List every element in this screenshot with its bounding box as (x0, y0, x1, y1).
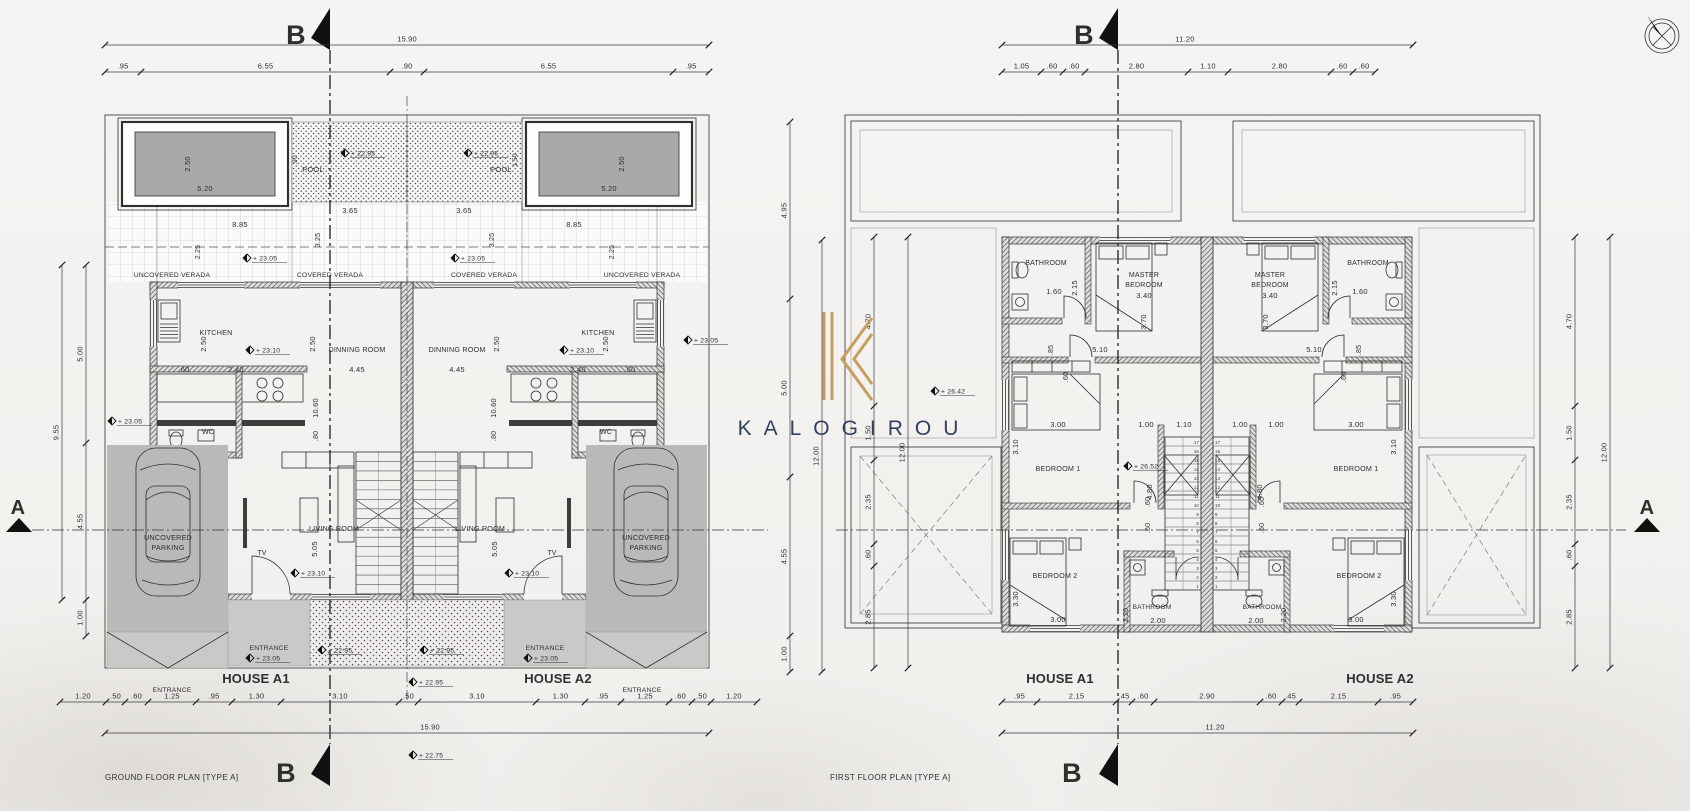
dim-label: 5.00 (76, 346, 85, 361)
stair-step-number: 3 (1215, 566, 1218, 571)
house-label: HOUSE A2 (524, 671, 592, 686)
dim-label: .60 (179, 367, 189, 374)
dim-label: .95 (597, 692, 608, 701)
level-marker-icon (409, 678, 413, 686)
dim-label: 5.20 (197, 184, 212, 193)
stair-step-number: 17 (1215, 440, 1221, 445)
dim-label: 1.00 (76, 610, 85, 625)
dim-label: 4.45 (349, 365, 364, 374)
room-label: UNCOVERED VERADA (604, 272, 681, 279)
dim-label: 6.55 (541, 62, 556, 71)
stair-step-number: 1 (1215, 584, 1218, 589)
dim-label: .60 (1565, 549, 1574, 560)
section-letter: A (1640, 497, 1655, 519)
dim-label: 3.10 (469, 692, 484, 701)
level-marker-icon (409, 751, 413, 759)
dim-label: .60 (625, 367, 635, 374)
room-label: BEDROOM 2 (1033, 571, 1078, 580)
dim-label: 2.35 (1565, 494, 1574, 509)
room-label: KITCHEN (582, 328, 615, 337)
dim-label: 1.20 (75, 692, 90, 701)
dim-label: 11.20 (1205, 723, 1224, 732)
dim-label: 1.00 (1232, 420, 1247, 429)
section-b-flag-bottom (311, 744, 330, 786)
dim-label: 1.30 (553, 692, 568, 701)
room-label: ENTRANCE (250, 645, 289, 652)
dim-label: 3.70 (1139, 314, 1148, 329)
dim-label: 1.05 (1014, 62, 1029, 71)
dim-label: 4.45 (449, 365, 464, 374)
dim-label: 2.25 (195, 245, 202, 259)
dim-label: .95 (1014, 692, 1025, 701)
level-label: + 22.75 (419, 753, 443, 760)
room-label: BATHROOM (1347, 260, 1389, 267)
room-label: PARKING (151, 543, 184, 552)
room-label: ENTRANCE (153, 687, 192, 694)
dim-label: 4.70 (864, 314, 873, 329)
stair-step-number: 1 (1196, 584, 1199, 589)
house-a1-geometry (107, 118, 407, 668)
dim-label: 5.10 (1092, 345, 1107, 354)
room-label: LIVING ROOM (455, 524, 505, 533)
dim-label: 10.60 (489, 398, 498, 418)
stair-step-number: 12 (1215, 485, 1221, 490)
stair-step-number: 11 (1194, 494, 1199, 499)
section-b-flag-top (1099, 8, 1118, 50)
dim-label: 4.55 (780, 549, 789, 564)
dim-label: 3.25 (315, 233, 322, 247)
plot-boundary (845, 115, 1540, 628)
room-label: WC (202, 427, 214, 436)
dim-label: .45 (1285, 692, 1296, 701)
dim-label: .60 (1265, 692, 1276, 701)
level-marker-icon (684, 336, 688, 344)
section-a-arrow (1634, 518, 1660, 532)
dim-label: .50 (110, 692, 121, 701)
dim-label: 2.15 (1330, 280, 1339, 295)
dim-label: 3.40 (1136, 291, 1151, 300)
floor-plans-drawing: 15.90.956.55.906.55.951.20.50.601.25.951… (0, 0, 1690, 811)
stair-step-number: 10 (1215, 503, 1221, 508)
level-label: + 22.95 (419, 680, 443, 687)
dim-label: .60 (864, 549, 873, 560)
room-label: KITCHEN (200, 328, 233, 337)
dim-label: 2.25 (609, 245, 616, 259)
level-marker-icon (931, 387, 935, 395)
stair-step-number: 12 (1194, 485, 1200, 490)
dim-label: 3.00 (1050, 615, 1065, 624)
stair-step-number: 13 (1215, 476, 1221, 481)
room-label: UNCOVERED VERADA (134, 272, 211, 279)
dim-label: 1.50 (512, 153, 519, 167)
dim-label: 2.50 (601, 336, 610, 351)
section-letter: B (286, 20, 306, 50)
dim-label: .60 (131, 692, 142, 701)
level-label: + 23.05 (534, 656, 558, 663)
dim-label: .95 (1390, 692, 1401, 701)
stair-step-number: 11 (1215, 494, 1220, 499)
dim-label: 2.20 (1281, 608, 1288, 622)
dim-label: .60 (1137, 692, 1148, 701)
dim-label: 12.00 (812, 446, 821, 466)
level-label: + 26.52 (1134, 464, 1158, 471)
dim-label: 2.50 (308, 336, 317, 351)
dim-label: 1.50 (864, 425, 873, 440)
dim-label: .60 (1341, 372, 1348, 382)
level-label: + 23.10 (570, 348, 594, 355)
dim-label: 4.55 (76, 514, 85, 529)
dim-label: .60 (1145, 523, 1152, 533)
room-label: BEDROOM 1 (1036, 464, 1081, 473)
stair-step-number: 2 (1196, 575, 1199, 580)
room-label: MASTER (1255, 272, 1285, 279)
stair-step-number: 16 (1215, 449, 1221, 454)
dim-label: POOL (490, 165, 512, 174)
dim-label: .60 (1358, 62, 1369, 71)
dim-label: 2.90 (1199, 692, 1214, 701)
dim-label: 11.20 (1175, 35, 1194, 44)
dim-label: 8.85 (232, 220, 247, 229)
dim-label: 5.05 (490, 541, 499, 556)
stair-step-number: 14 (1194, 467, 1200, 472)
dim-label: 12.00 (1600, 443, 1609, 463)
dim-label: 3.70 (1261, 314, 1270, 329)
dim-label: 3.65 (456, 206, 471, 215)
section-letter: B (1062, 758, 1082, 788)
dim-label: .45 (1118, 692, 1129, 701)
dim-label: 5.20 (601, 184, 616, 193)
dim-label: 2.00 (1150, 616, 1165, 625)
stair-step-number: 10 (1194, 503, 1200, 508)
stair-step-number: 5 (1215, 548, 1218, 553)
room-label: ENTRANCE (526, 645, 565, 652)
dim-label: 6.55 (258, 62, 273, 71)
dim-label: 5.05 (310, 541, 319, 556)
level-marker-icon (246, 346, 250, 354)
stair-step-number: 15 (1194, 458, 1200, 463)
stair-step-number: 17 (1194, 440, 1200, 445)
dim-label: 2.50 (492, 336, 501, 351)
dim-label: .50 (403, 692, 414, 701)
house-label: HOUSE A1 (1026, 671, 1094, 686)
stair-step-number: 9 (1215, 512, 1218, 517)
room-label: BEDROOM (1125, 282, 1163, 289)
level-label: + 22.95 (351, 151, 375, 158)
room-label: MASTER (1129, 272, 1159, 279)
dim-label: 1.00 (1138, 420, 1153, 429)
dim-label: 2.80 (1272, 62, 1287, 71)
dim-label: 4.70 (1565, 314, 1574, 329)
stair-step-number: 4 (1215, 557, 1218, 562)
level-marker-icon (108, 417, 112, 425)
stair-step-number: 9 (1196, 512, 1199, 517)
stair-step-number: 7 (1196, 530, 1199, 535)
stair-step-number: 16 (1194, 449, 1200, 454)
dim-label: 1.20 (726, 692, 741, 701)
room-label: DINNING ROOM (428, 345, 485, 354)
dim-label: 1.00 (780, 646, 789, 661)
dim-label: 5.00 (780, 380, 789, 395)
dim-label: .60 (1259, 523, 1266, 533)
dim-label: .95 (685, 62, 696, 71)
level-label: + 23.05 (118, 419, 142, 426)
room-label: COVERED VERADA (451, 272, 518, 279)
level-label: + 23.10 (301, 571, 325, 578)
party-wall (1201, 237, 1213, 632)
dim-label: .60 (1046, 62, 1057, 71)
level-label: + 22.95 (328, 648, 352, 655)
dim-label: 2.50 (617, 156, 626, 171)
room-label: TV (547, 550, 556, 557)
room-label: TV (257, 550, 266, 557)
stair-step-number: 6 (1196, 539, 1199, 544)
dim-label: .95 (117, 62, 128, 71)
dim-label: 5.10 (1306, 345, 1321, 354)
dim-label: .95 (208, 692, 219, 701)
level-label: + 26.42 (941, 389, 965, 396)
dim-label: 15.90 (420, 723, 440, 732)
dim-label: 2.15 (1070, 280, 1079, 295)
room-label: BEDROOM 1 (1334, 464, 1379, 473)
dim-label: 1.60 (1352, 287, 1367, 296)
stair-step-number: 14 (1215, 467, 1221, 472)
stair-step-number: 6 (1215, 539, 1218, 544)
stair-step-number: 5 (1196, 548, 1199, 553)
stair-step-number: 13 (1194, 476, 1200, 481)
room-label: UNCOVERED (622, 533, 670, 542)
dim-label: .60 (675, 692, 686, 701)
dim-label: 4.80 (1145, 484, 1154, 499)
room-label: ENTRANCE (623, 687, 662, 694)
dim-label: 3.30 (1389, 591, 1398, 606)
dim-label: 2.40 (570, 365, 585, 374)
level-label: + 23.10 (515, 571, 539, 578)
dim-label: 2.85 (864, 609, 873, 624)
level-marker-icon (505, 569, 509, 577)
dim-label: 1.10 (1176, 420, 1191, 429)
dim-label: 3.30 (1011, 591, 1020, 606)
dim-label: 3.40 (1262, 291, 1277, 300)
dim-label: 1.60 (1046, 287, 1061, 296)
dim-label: 3.00 (1348, 615, 1363, 624)
dim-label: 10.60 (311, 398, 320, 418)
room-label: BATHROOM (1243, 604, 1282, 611)
dim-label: 2.50 (199, 336, 208, 351)
level-label: + 23.05 (256, 656, 280, 663)
room-label: BATHROOM (1133, 604, 1172, 611)
level-label: + 22.95 (474, 151, 498, 158)
room-label: WC (600, 427, 612, 436)
room-label: BATHROOM (1025, 260, 1067, 267)
dim-label: .50 (696, 692, 707, 701)
dim-label: 1.10 (1200, 62, 1215, 71)
north-arrow-icon (1645, 15, 1679, 53)
room-label: DINNING ROOM (328, 345, 385, 354)
section-letter: B (1074, 20, 1094, 50)
dim-label: 1.50 (1565, 425, 1574, 440)
dim-label: 2.50 (183, 156, 192, 171)
dim-label: 3.00 (1348, 420, 1363, 429)
dim-label: 3.10 (1011, 439, 1020, 454)
dim-label: 8.85 (566, 220, 581, 229)
section-letter: A (11, 497, 26, 519)
dim-label: 3.10 (1389, 439, 1398, 454)
section-b-flag-top (311, 8, 330, 50)
dim-label: 4.80 (1255, 484, 1264, 499)
dim-label: 12.00 (898, 443, 907, 463)
room-label: BEDROOM (1251, 282, 1289, 289)
section-letter: B (276, 758, 296, 788)
stair-step-number: 4 (1196, 557, 1199, 562)
level-label: + 23.05 (253, 256, 277, 263)
dim-label: 9.55 (52, 425, 61, 440)
stair-step-number: 7 (1215, 530, 1218, 535)
stair-step-number: 8 (1196, 521, 1199, 526)
stair-step-number: 8 (1215, 521, 1218, 526)
void-terrace-right (1419, 447, 1534, 623)
room-label: COVERED VERADA (297, 272, 364, 279)
dim-label: 2.20 (1123, 608, 1130, 622)
dim-label: 3.65 (342, 206, 357, 215)
house-label: HOUSE A1 (222, 671, 290, 686)
dim-label: 2.15 (1069, 692, 1084, 701)
dim-label: 3.00 (1050, 420, 1065, 429)
room-label: LIVING ROOM (309, 524, 359, 533)
dim-label: .80 (313, 431, 320, 441)
dim-label: .60 (1063, 372, 1070, 382)
dim-label: .85 (1048, 345, 1055, 355)
dim-label: 4.95 (780, 203, 789, 218)
dim-label: 1.30 (249, 692, 264, 701)
dim-label: .90 (401, 62, 412, 71)
stair-step-number: 2 (1215, 575, 1218, 580)
level-marker-icon (560, 346, 564, 354)
level-label: + 22.95 (430, 648, 454, 655)
level-label: + 23.05 (461, 256, 485, 263)
dim-label: .80 (491, 431, 498, 441)
void-terrace-left (851, 447, 1001, 623)
dim-label: 3.10 (332, 692, 347, 701)
dim-label: 3.25 (489, 233, 496, 247)
section-b-flag-bottom (1099, 744, 1118, 786)
plan-title: GROUND FLOOR PLAN [TYPE A] (105, 773, 239, 782)
plan-title: FIRST FLOOR PLAN [TYPE A] (830, 773, 951, 782)
level-label: + 23.10 (256, 348, 280, 355)
room-label: BEDROOM 2 (1337, 571, 1382, 580)
room-label: UNCOVERED (144, 533, 192, 542)
house-a1-upper-geometry (1001, 236, 1201, 632)
level-label: + 23.05 (694, 338, 718, 345)
ground-floor-plan (6, 8, 768, 786)
dim-label: .60 (1068, 62, 1079, 71)
level-marker-icon (291, 569, 295, 577)
dim-label: 2.15 (1331, 692, 1346, 701)
section-a-arrow (6, 518, 32, 532)
dim-label: POOL (302, 165, 324, 174)
level-marker-icon (1124, 462, 1128, 470)
dim-label: 2.40 (228, 365, 243, 374)
blueprint-sheet: 15.90.956.55.906.55.951.20.50.601.25.951… (0, 0, 1690, 811)
dim-label: 2.35 (864, 494, 873, 509)
dim-label: 2.80 (1129, 62, 1144, 71)
dim-label: .85 (1356, 345, 1363, 355)
dim-label: 15.90 (397, 35, 417, 44)
dim-label: 2.00 (1248, 616, 1263, 625)
house-label: HOUSE A2 (1346, 671, 1414, 686)
room-label: PARKING (629, 543, 662, 552)
first-floor-plan (836, 8, 1679, 786)
dim-label: .90 (292, 155, 299, 165)
dim-label: 2.85 (1565, 609, 1574, 624)
stair-step-number: 3 (1196, 566, 1199, 571)
dim-label: 1.00 (1268, 420, 1283, 429)
stair-step-number: 15 (1215, 458, 1221, 463)
dim-label: .60 (1336, 62, 1347, 71)
